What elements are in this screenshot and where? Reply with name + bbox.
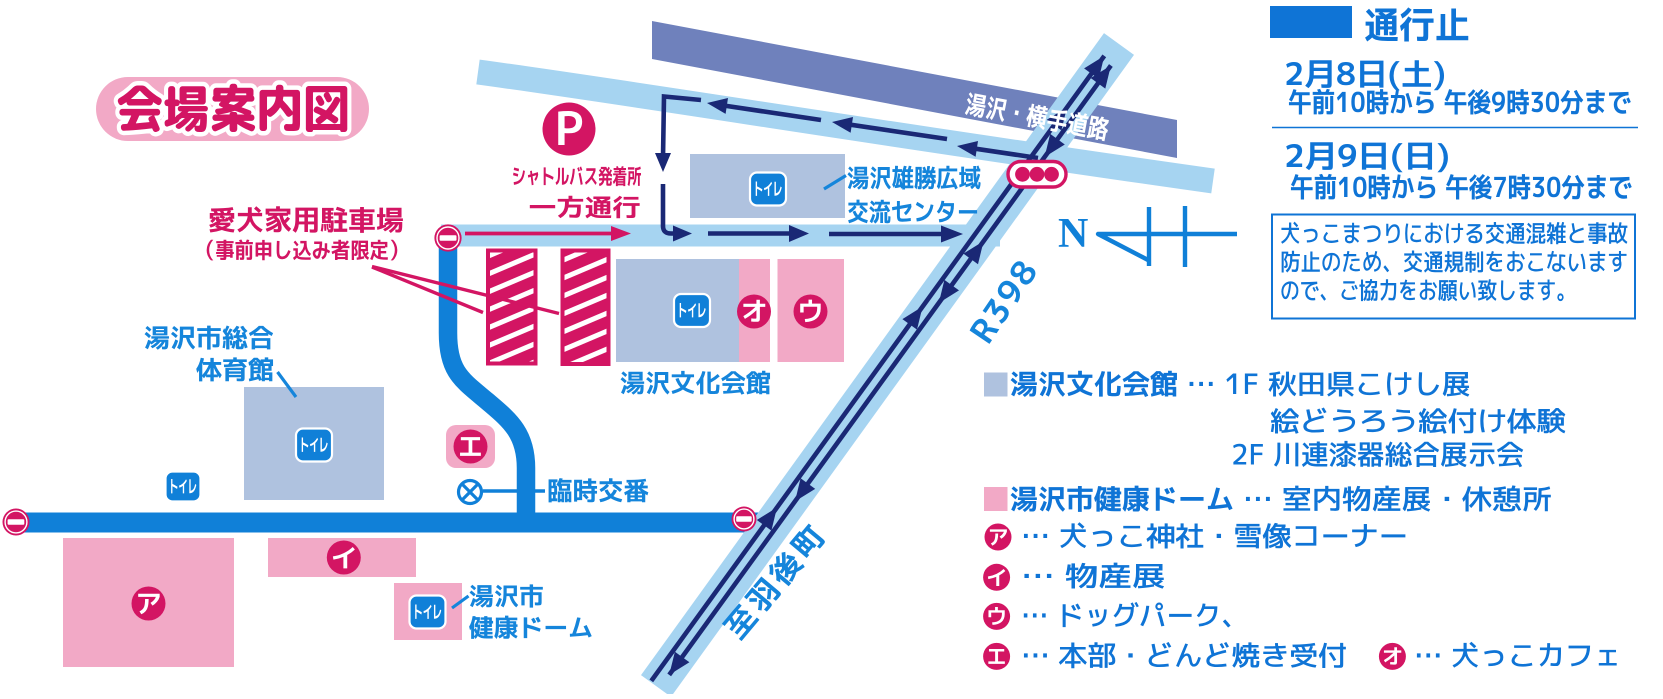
svg-text:N: N: [1058, 211, 1088, 257]
